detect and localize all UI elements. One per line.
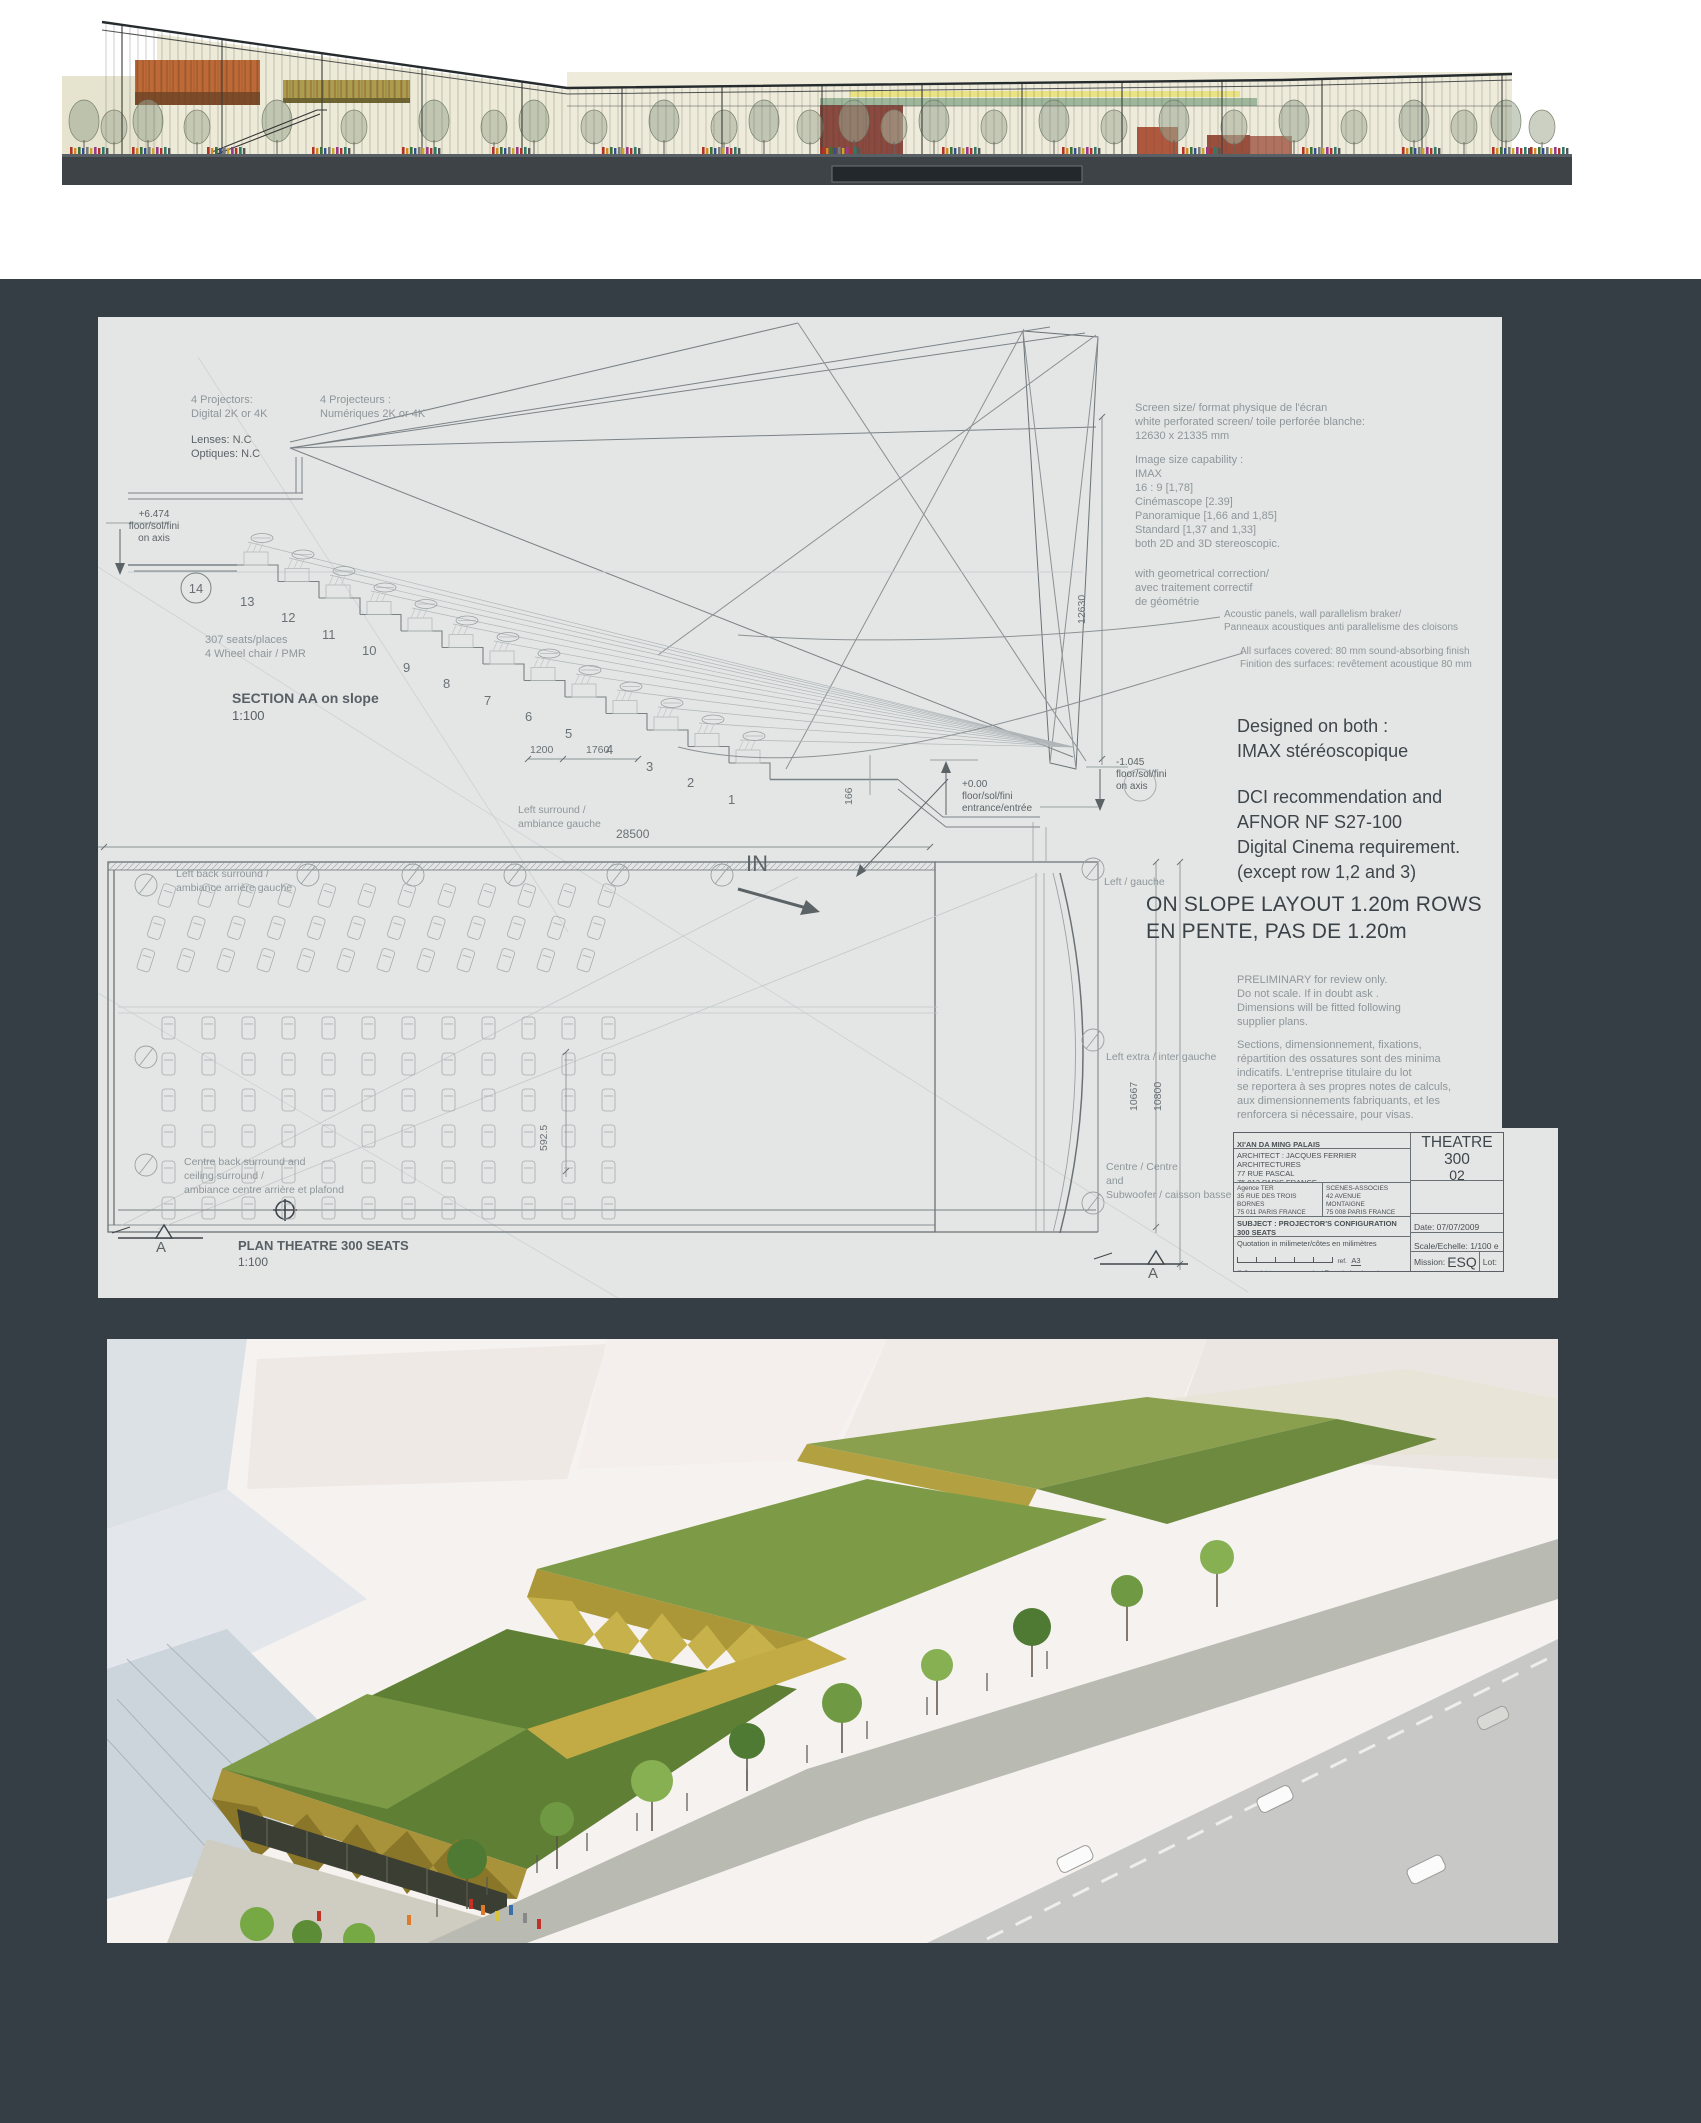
- centre-back-label: Centre back surround and ceiling surroun…: [184, 1155, 344, 1197]
- row-number: 8: [443, 676, 450, 691]
- dim-10667: 10667: [1128, 1082, 1140, 1111]
- titleblock-scalebar: [1237, 1257, 1333, 1263]
- presentation-page: 4 Projectors: Digital 2K or 4K 4 Project…: [0, 0, 1701, 2123]
- slope-statement: ON SLOPE LAYOUT 1.20m ROWS EN PENTE, PAS…: [1146, 891, 1482, 945]
- left-surround-label: Left surround / ambiance gauche: [518, 803, 601, 831]
- image-size-note: Image size capability : IMAX 16 : 9 [1,7…: [1135, 453, 1280, 551]
- sections-note: Sections, dimensionnement, fixations, ré…: [1237, 1038, 1451, 1122]
- centre-subwoofer-label: Centre / Centre and Subwoofer / caisson …: [1106, 1160, 1232, 1202]
- section-marker-a-right: A: [1148, 1267, 1158, 1281]
- titleblock-scenes-associes: SCENES-ASSOCIES 42 AVENUE MONTAIGNE 75 0…: [1326, 1185, 1396, 1217]
- section-title: SECTION AA on slope: [232, 690, 379, 706]
- sheet-titleblock-tab: [1502, 1128, 1558, 1298]
- titleblock-mission-value: ESQ: [1445, 1254, 1479, 1270]
- row-number: 13: [240, 594, 254, 609]
- screen-size-note: Screen size/ format physique de l'écran …: [1135, 401, 1365, 443]
- level-entrance-label: +0.00 floor/sol/fini entrance/entrée: [962, 779, 1032, 815]
- row-number: 9: [403, 660, 410, 675]
- projectors-en-label: 4 Projectors: Digital 2K or 4K: [191, 393, 267, 421]
- row-number: 1: [728, 792, 735, 807]
- left-back-surround-label: Left back surround / ambiance arrière ga…: [176, 867, 292, 895]
- titleblock-doc-title: THEATRE 300: [1414, 1134, 1500, 1168]
- section-marker-a-left: A: [156, 1241, 166, 1255]
- row-number: 3: [646, 759, 653, 774]
- row-number: 11: [322, 627, 336, 642]
- aerial-render-figure: [107, 1339, 1558, 1943]
- preliminary-note: PRELIMINARY for review only. Do not scal…: [1237, 973, 1401, 1029]
- titleblock-ref: ref.: [1337, 1258, 1346, 1265]
- titleblock: XI'AN DA MING PALAIS TOURIST COMPLEX ARC…: [1233, 1132, 1504, 1272]
- seats-count-label: 307 seats/places 4 Wheel chair / PMR: [205, 633, 306, 661]
- dim-166: 166: [843, 787, 855, 805]
- dim-1200: 1200: [530, 743, 553, 757]
- left-extra-label: Left extra / inter gauche: [1106, 1050, 1216, 1064]
- section-scale: 1:100: [232, 708, 265, 723]
- titleblock-subject: SUBJECT : PROJECTOR'S CONFIGURATION 300 …: [1237, 1219, 1407, 1237]
- level-top-label: +6.474 floor/sol/fini on axis: [106, 509, 202, 545]
- titleblock-architect: ARCHITECT : JACQUES FERRIER ARCHITECTURE…: [1237, 1151, 1407, 1183]
- titleblock-project: XI'AN DA MING PALAIS: [1237, 1140, 1320, 1149]
- elevation-strip-figure: [62, 14, 1572, 185]
- theatre-drawing-sheet: 4 Projectors: Digital 2K or 4K 4 Project…: [98, 317, 1502, 1298]
- row-number: 6: [525, 709, 532, 724]
- acoustic-note: Acoustic panels, wall parallelism braker…: [1224, 608, 1458, 634]
- left-gauche-label: Left / gauche: [1104, 875, 1165, 889]
- dim-592: 592.5: [538, 1125, 550, 1151]
- row-circle-label: 14: [182, 581, 210, 596]
- titleblock-date: Date: 07/07/2009: [1414, 1222, 1479, 1232]
- dim-28500: 28500: [616, 827, 649, 841]
- surfaces-note: All surfaces covered: 80 mm sound-absorb…: [1240, 645, 1472, 671]
- titleblock-empty-cell: [1410, 1181, 1503, 1214]
- row-number: 10: [362, 643, 376, 658]
- dim-10800: 10800: [1152, 1082, 1164, 1111]
- projectors-fr-label: 4 Projecteurs : Numériques 2K or 4K: [320, 393, 425, 421]
- row-number: 7: [484, 693, 491, 708]
- titleblock-lot-label: Lot:: [1479, 1252, 1503, 1271]
- aerial-render-drawing: [107, 1339, 1558, 1943]
- geometry-note: with geometrical correction/ avec traite…: [1135, 567, 1269, 609]
- plan-scale: 1:100: [238, 1255, 268, 1269]
- titleblock-mission-label: Mission:: [1411, 1257, 1445, 1267]
- dci-statement: DCI recommendation and AFNOR NF S27-100 …: [1237, 785, 1460, 885]
- titleblock-paper-size: A3: [1351, 1256, 1360, 1266]
- designed-statement: Designed on both : IMAX stéréoscopique: [1237, 714, 1408, 764]
- titleblock-agence-ter: Agence TER 35 RUE DES TROIS BORNES 75 01…: [1237, 1185, 1319, 1217]
- dim-12630: 12630: [1076, 595, 1088, 624]
- lenses-label: Lenses: N.C Optiques: N.C: [191, 433, 260, 461]
- dim-1760: 1760: [586, 743, 609, 757]
- row-number: 12: [281, 610, 295, 625]
- in-label: IN: [746, 857, 768, 871]
- plan-title: PLAN THEATRE 300 SEATS: [238, 1238, 409, 1253]
- titleblock-copyright: © Copyright scenes-associes/ Tous droits…: [1237, 1270, 1407, 1271]
- level-screen-label: -1.045 floor/sol/fini on axis: [1116, 757, 1167, 793]
- titleblock-quotation: Quotation in milimeter/côtes en milimètr…: [1237, 1239, 1407, 1248]
- row-number: 5: [565, 726, 572, 741]
- titleblock-doc-number: 02: [1414, 1168, 1500, 1181]
- elevation-strip-drawing: [62, 14, 1572, 185]
- row-number: 2: [687, 775, 694, 790]
- titleblock-scale: Scale/Echelle: 1/100 e: [1414, 1241, 1499, 1251]
- dark-panel: 4 Projectors: Digital 2K or 4K 4 Project…: [0, 279, 1701, 2123]
